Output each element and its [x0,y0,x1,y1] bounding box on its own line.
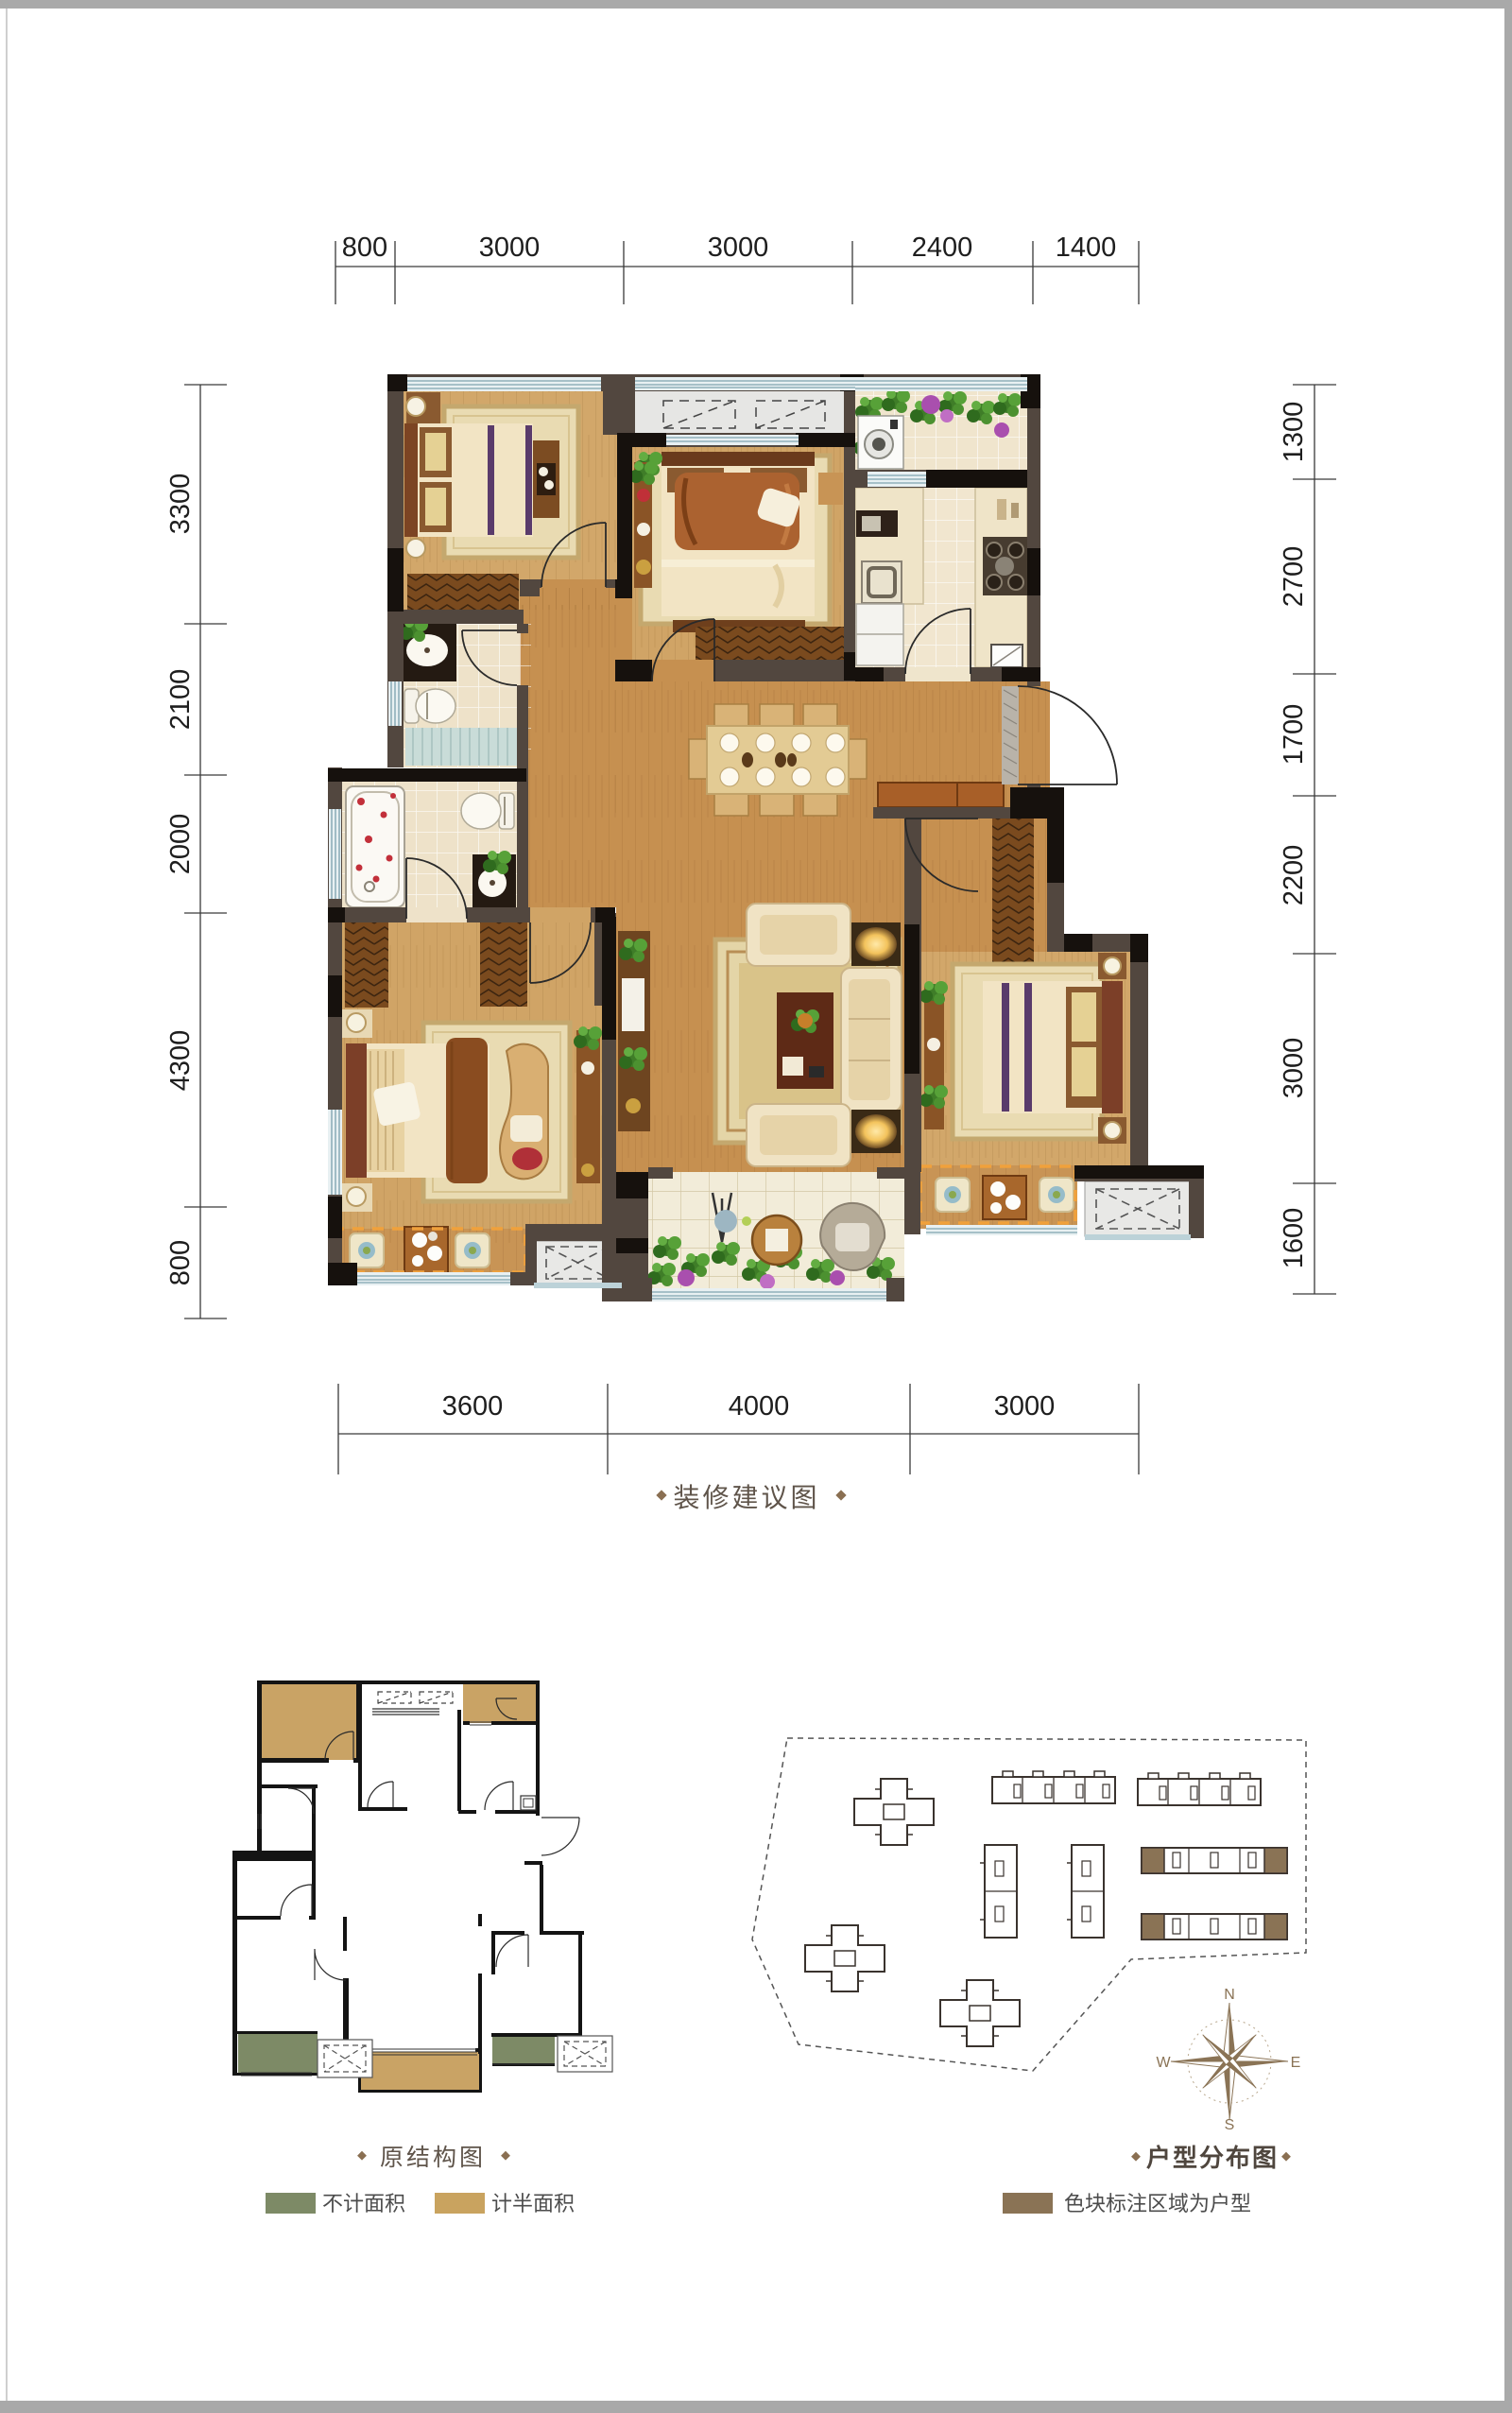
svg-text:E: E [1291,2055,1301,2071]
svg-text:3000: 3000 [479,233,541,263]
svg-text:装修建议图: 装修建议图 [673,1483,819,1512]
svg-text:800: 800 [342,233,387,263]
svg-text:2400: 2400 [912,233,973,263]
svg-text:W: W [1156,2055,1171,2071]
svg-text:2100: 2100 [165,669,196,731]
svg-text:1400: 1400 [1056,233,1117,263]
svg-text:原结构图: 原结构图 [380,2145,486,2171]
svg-text:2700: 2700 [1279,546,1309,608]
svg-text:计半面积: 计半面积 [491,2192,575,2215]
svg-text:3000: 3000 [708,233,769,263]
svg-text:4300: 4300 [165,1030,196,1092]
svg-text:N: N [1224,1987,1235,2003]
svg-text:户型分布图: 户型分布图 [1146,2144,1279,2172]
svg-text:3000: 3000 [994,1391,1056,1422]
svg-text:色块标注区域为户型: 色块标注区域为户型 [1064,2192,1251,2215]
svg-text:3300: 3300 [165,474,196,535]
svg-text:3600: 3600 [442,1391,504,1422]
svg-text:4000: 4000 [729,1391,790,1422]
svg-text:S: S [1225,2117,1235,2133]
svg-text:1600: 1600 [1279,1208,1309,1269]
svg-text:1700: 1700 [1279,704,1309,766]
svg-text:1300: 1300 [1279,402,1309,463]
svg-text:3000: 3000 [1279,1038,1309,1099]
svg-text:不计面积: 不计面积 [322,2192,405,2215]
svg-text:2200: 2200 [1279,845,1309,906]
svg-text:2000: 2000 [165,814,196,875]
svg-text:800: 800 [165,1240,196,1285]
